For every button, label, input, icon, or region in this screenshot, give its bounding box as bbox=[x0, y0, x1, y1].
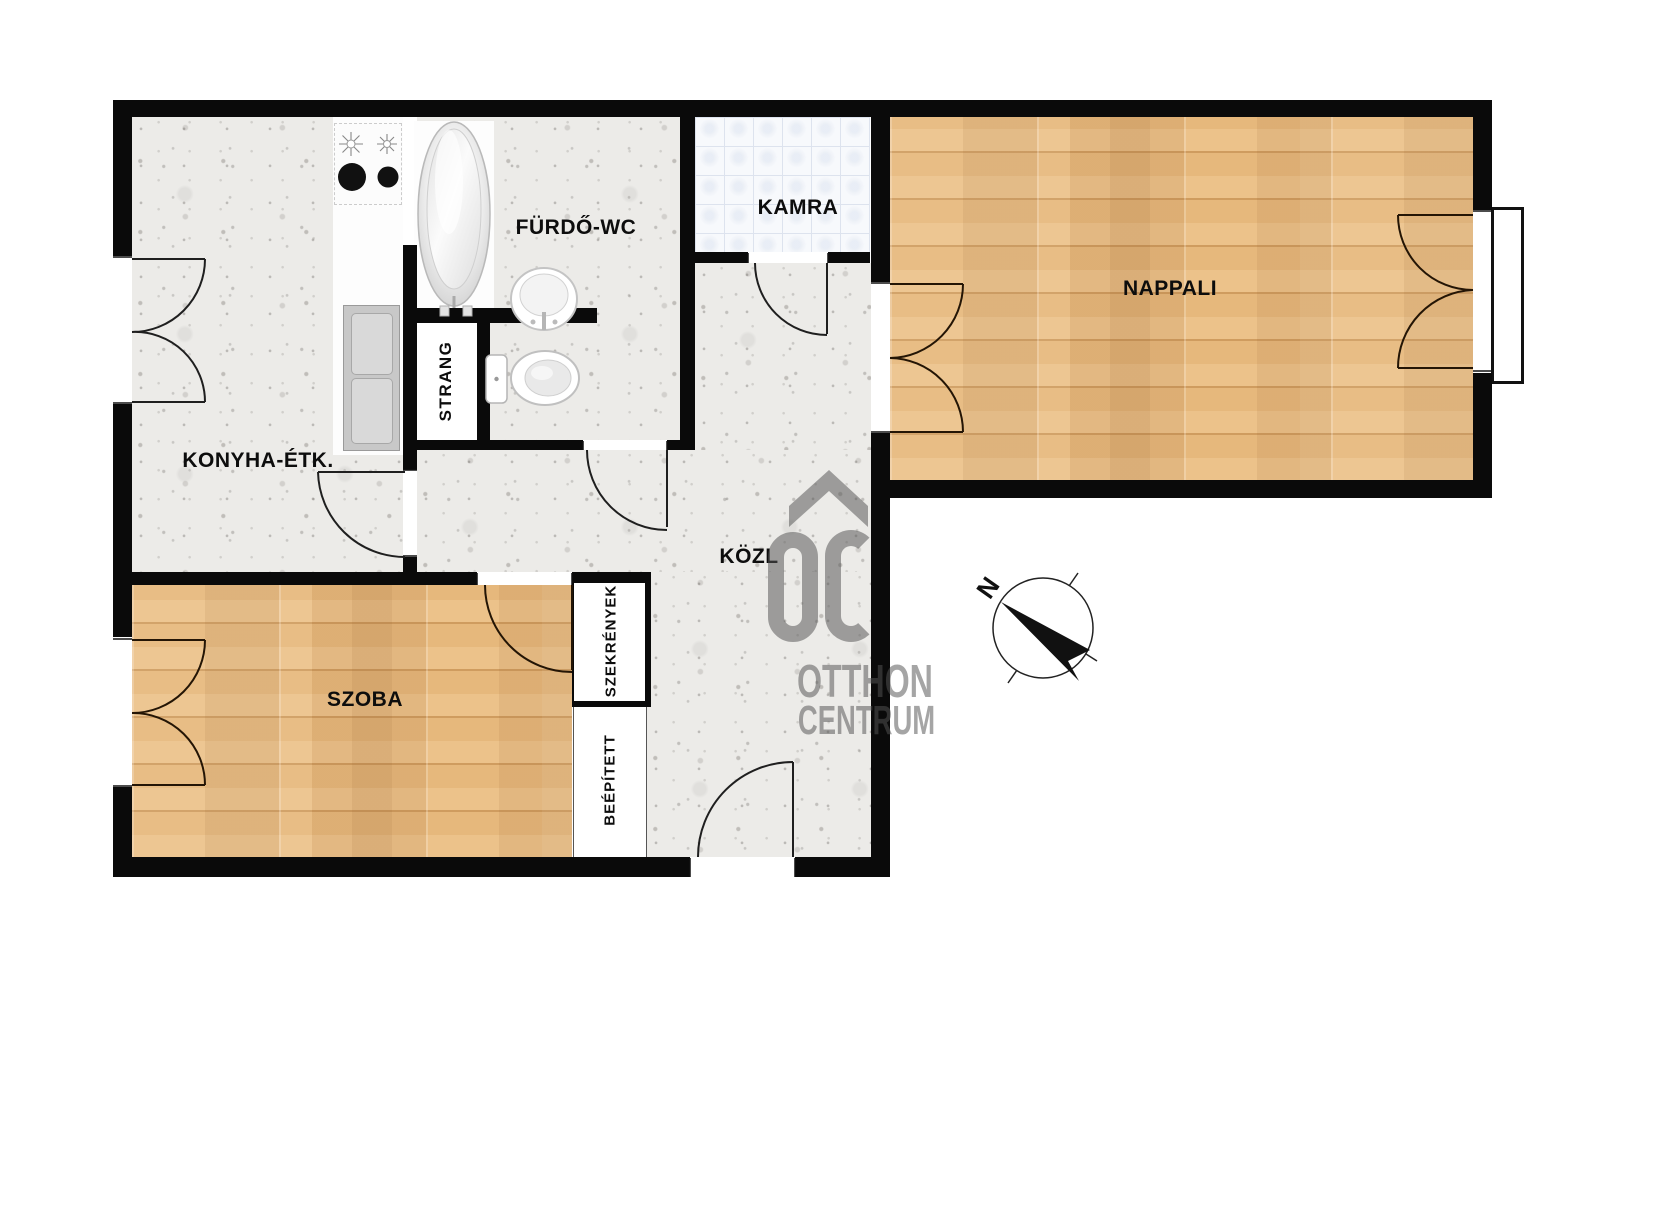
compass-north-label: N bbox=[970, 571, 1005, 604]
floor-bedroom bbox=[132, 585, 572, 857]
wall-left-upper bbox=[113, 117, 132, 256]
balcony-sill bbox=[1491, 207, 1524, 384]
floor-plan-canvas: N KONYHA-ÉTK. FÜRDŐ-WC KAMRA NAPPALI KÖZ… bbox=[0, 0, 1659, 1220]
wall-hall-living-upper bbox=[871, 117, 890, 282]
wall-hall-top-left bbox=[403, 440, 583, 450]
annotation-strang: STRANG bbox=[436, 341, 456, 422]
room-label-living-room: NAPPALI bbox=[1123, 277, 1217, 301]
floor-hall-corridor bbox=[647, 572, 871, 857]
wall-left-middle bbox=[113, 404, 132, 637]
room-label-hall: KÖZL bbox=[719, 545, 778, 569]
stove-panel bbox=[334, 123, 402, 205]
wall-pantry-bottom-left bbox=[695, 252, 748, 263]
compass-rose-icon: N bbox=[970, 571, 1097, 683]
wall-hall-living-lower bbox=[871, 433, 890, 877]
wall-strang-right bbox=[477, 323, 490, 440]
wall-kitchen-right-upper bbox=[403, 245, 417, 470]
wall-pantry-left bbox=[680, 117, 695, 450]
north-needle bbox=[1001, 602, 1090, 681]
room-label-kitchen: KONYHA-ÉTK. bbox=[182, 449, 333, 473]
annotation-beepitett: BEÉPÍTETT bbox=[602, 734, 619, 826]
annotation-szekrenyek: SZEKRÉNYEK bbox=[603, 585, 620, 698]
kitchen-sink-basin-bottom bbox=[351, 378, 393, 444]
room-label-bedroom: SZOBA bbox=[327, 688, 403, 712]
kitchen-sink-basin-top bbox=[351, 313, 393, 375]
room-label-bathroom: FÜRDŐ-WC bbox=[516, 216, 637, 240]
wall-bottom-left bbox=[113, 857, 690, 877]
wall-living-right-upper bbox=[1473, 117, 1492, 210]
floor-hall-upper bbox=[695, 263, 871, 450]
bathtub-frame bbox=[414, 121, 494, 308]
wall-pantry-bottom-right bbox=[828, 252, 870, 263]
floor-pantry bbox=[695, 117, 870, 252]
wall-living-right-lower bbox=[1473, 373, 1492, 498]
wall-bedroom-top bbox=[113, 572, 477, 585]
wall-living-bottom bbox=[871, 480, 1492, 498]
wall-top bbox=[113, 100, 1492, 117]
room-label-pantry: KAMRA bbox=[758, 196, 839, 220]
wall-bath-divider bbox=[403, 308, 597, 323]
floor-hall-lower bbox=[417, 450, 871, 572]
wall-hall-top-right bbox=[667, 440, 695, 450]
